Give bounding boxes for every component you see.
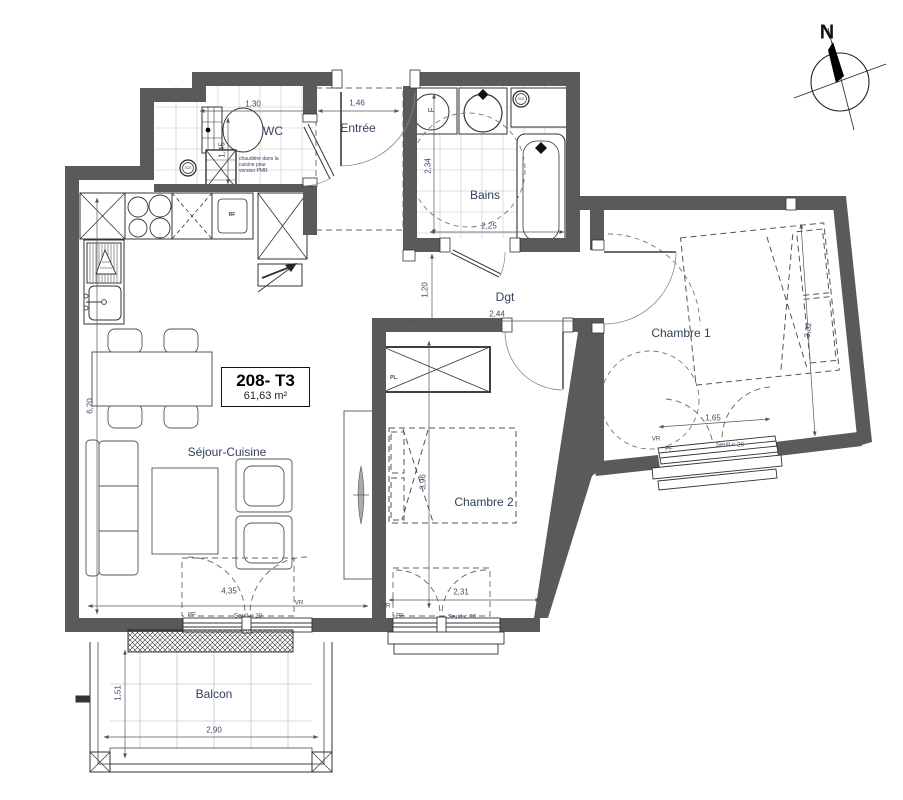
armchair — [236, 516, 292, 569]
room-label-wc: WC — [263, 124, 283, 138]
room-label-sejour: Séjour-Cuisine — [188, 445, 267, 459]
boiler-note: chaudière dans la cuisine pour version P… — [239, 156, 299, 175]
dim-balcon-depth: 1,51 — [114, 685, 123, 701]
tag-washing-machine: LL — [428, 108, 434, 114]
vent-symbol-box — [258, 264, 302, 286]
dim-chambre2-depth: 3,96 — [419, 474, 428, 490]
dim-wc-depth: 1,45 — [218, 142, 227, 158]
dining-table — [92, 352, 212, 406]
unit-id: 208- T3 — [222, 371, 309, 390]
entry-zone — [316, 88, 403, 230]
room-label-entree: Entrée — [340, 121, 375, 135]
tag-vr-chambre1: VR — [652, 436, 661, 443]
dim-sejour-width: 4,35 — [221, 587, 237, 596]
boiler-note-line3: version PMR — [239, 168, 299, 174]
tag-sce-bains: SCE — [518, 97, 525, 101]
tag-vr-sejour: VR — [295, 600, 304, 607]
wardrobe — [383, 347, 490, 392]
door-clearance-arc-chambre1 — [608, 234, 700, 326]
tag-vr-chambre2: VR — [382, 603, 391, 610]
dim-chambre2-width: 2,31 — [453, 588, 469, 597]
room-label-chambre1: Chambre 1 — [651, 326, 710, 340]
washbasin — [459, 88, 507, 134]
dim-bains-depth: 2,34 — [424, 158, 433, 174]
dim-chambre1-window: 1,65 — [705, 414, 721, 423]
dim-sejour-depth: 6,20 — [86, 398, 95, 414]
north-compass — [794, 28, 886, 130]
floor-plan-canvas: WC Entrée Bains Dgt Chambre 1 Chambre 2 … — [0, 0, 903, 800]
balcony-structure — [76, 642, 332, 772]
door-chambre1 — [604, 252, 676, 324]
tag-wardrobe: PL. — [390, 375, 398, 381]
window-chambre2 — [388, 617, 504, 654]
dim-bains-width: 2,25 — [481, 222, 497, 231]
tag-seuil-sejour: Seuil < 20 — [234, 613, 262, 620]
door-bains — [451, 250, 505, 277]
tag-sce-kitchen: SCE — [185, 166, 192, 170]
tag-seuil-chambre2: Seuil < 20 — [448, 614, 476, 621]
tag-pf-chambre1: PF — [665, 446, 673, 453]
bathtub — [517, 134, 565, 248]
dim-balcon-width: 2,90 — [206, 726, 222, 735]
coffee-table — [152, 468, 218, 554]
room-label-chambre2: Chambre 2 — [454, 495, 513, 509]
armchair — [236, 459, 292, 512]
dim-dgt-width: 2,44 — [489, 310, 505, 319]
balcony-grille — [128, 630, 293, 652]
dim-entree-width: 1,46 — [349, 99, 365, 108]
tag-fridge: RF — [229, 212, 236, 218]
dim-chambre1-depth: 3,32 — [803, 322, 814, 338]
door-chambre2 — [505, 332, 563, 390]
bed-chambre1 — [681, 223, 840, 385]
sofa — [86, 440, 138, 576]
tag-pf-chambre2: PF — [396, 613, 404, 620]
floor-plan-drawing — [0, 0, 903, 800]
room-label-bains: Bains — [470, 188, 500, 202]
sink-unit — [84, 240, 124, 324]
north-arrow-icon — [828, 42, 844, 83]
tag-seuil-chambre1: Seuil < 20 — [716, 442, 744, 449]
room-label-balcon: Balcon — [196, 687, 233, 701]
tag-pf-sejour: PF — [188, 612, 196, 619]
room-label-dgt: Dgt — [496, 290, 515, 304]
unit-area: 61,63 m² — [222, 390, 309, 403]
toilet — [202, 107, 263, 153]
door-wc — [304, 124, 334, 186]
dim-wc-width: 1,30 — [245, 100, 261, 109]
north-label: N — [820, 22, 834, 45]
dim-dgt-depth: 1,20 — [421, 282, 430, 298]
unit-id-box: 208- T3 61,63 m² — [221, 367, 310, 407]
pmr-turning-circle-chambre1 — [601, 351, 699, 449]
